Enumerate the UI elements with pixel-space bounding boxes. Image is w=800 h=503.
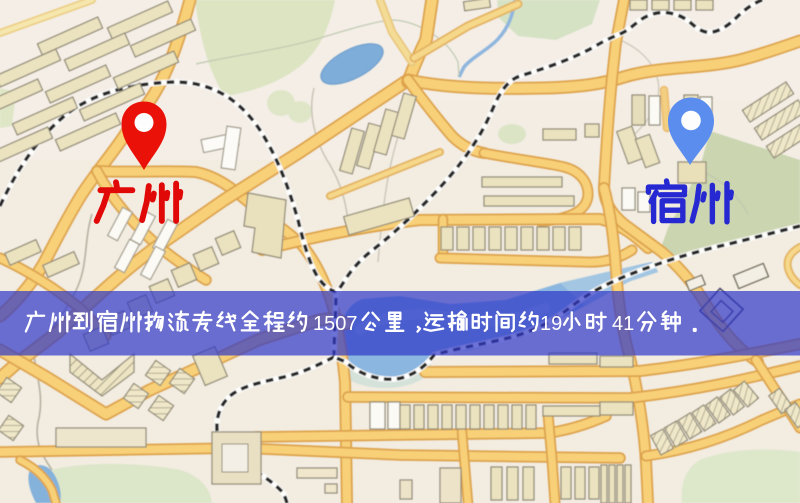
svg-text:1507: 1507: [313, 313, 358, 335]
svg-text:41: 41: [612, 313, 634, 335]
svg-text:19: 19: [540, 313, 562, 335]
